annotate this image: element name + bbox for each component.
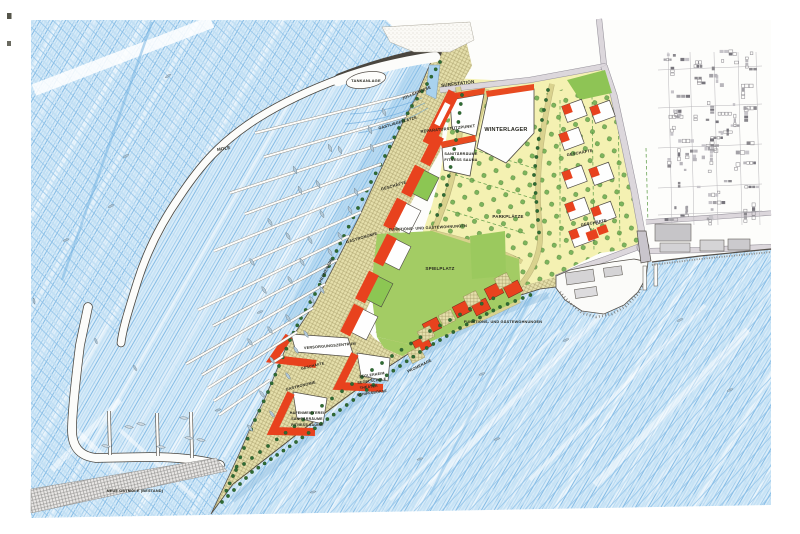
svg-text:SANITÄRRÄUME: SANITÄRRÄUME: [444, 152, 477, 156]
svg-text:FITNESS SAUNA: FITNESS SAUNA: [291, 423, 323, 427]
svg-text:HAFENMEISTEREI: HAFENMEISTEREI: [290, 411, 325, 415]
svg-text:FITNESS SAUNA: FITNESS SAUNA: [444, 158, 477, 162]
svg-text:SPIELPLATZ: SPIELPLATZ: [425, 266, 454, 271]
svg-text:FUNKTIONS- UND GÄSTEWOHNUNGEN: FUNKTIONS- UND GÄSTEWOHNUNGEN: [464, 320, 542, 324]
svg-text:SANITÄRRÄUME: SANITÄRRÄUME: [291, 417, 323, 421]
svg-text:TANKANLAGE: TANKANLAGE: [351, 78, 381, 83]
svg-text:WINTERLAGER: WINTERLAGER: [484, 127, 527, 133]
svg-text:NEUE OSTMOLE (BESTAND): NEUE OSTMOLE (BESTAND): [107, 489, 164, 493]
svg-text:PARKPLÄTZE: PARKPLÄTZE: [492, 214, 523, 219]
